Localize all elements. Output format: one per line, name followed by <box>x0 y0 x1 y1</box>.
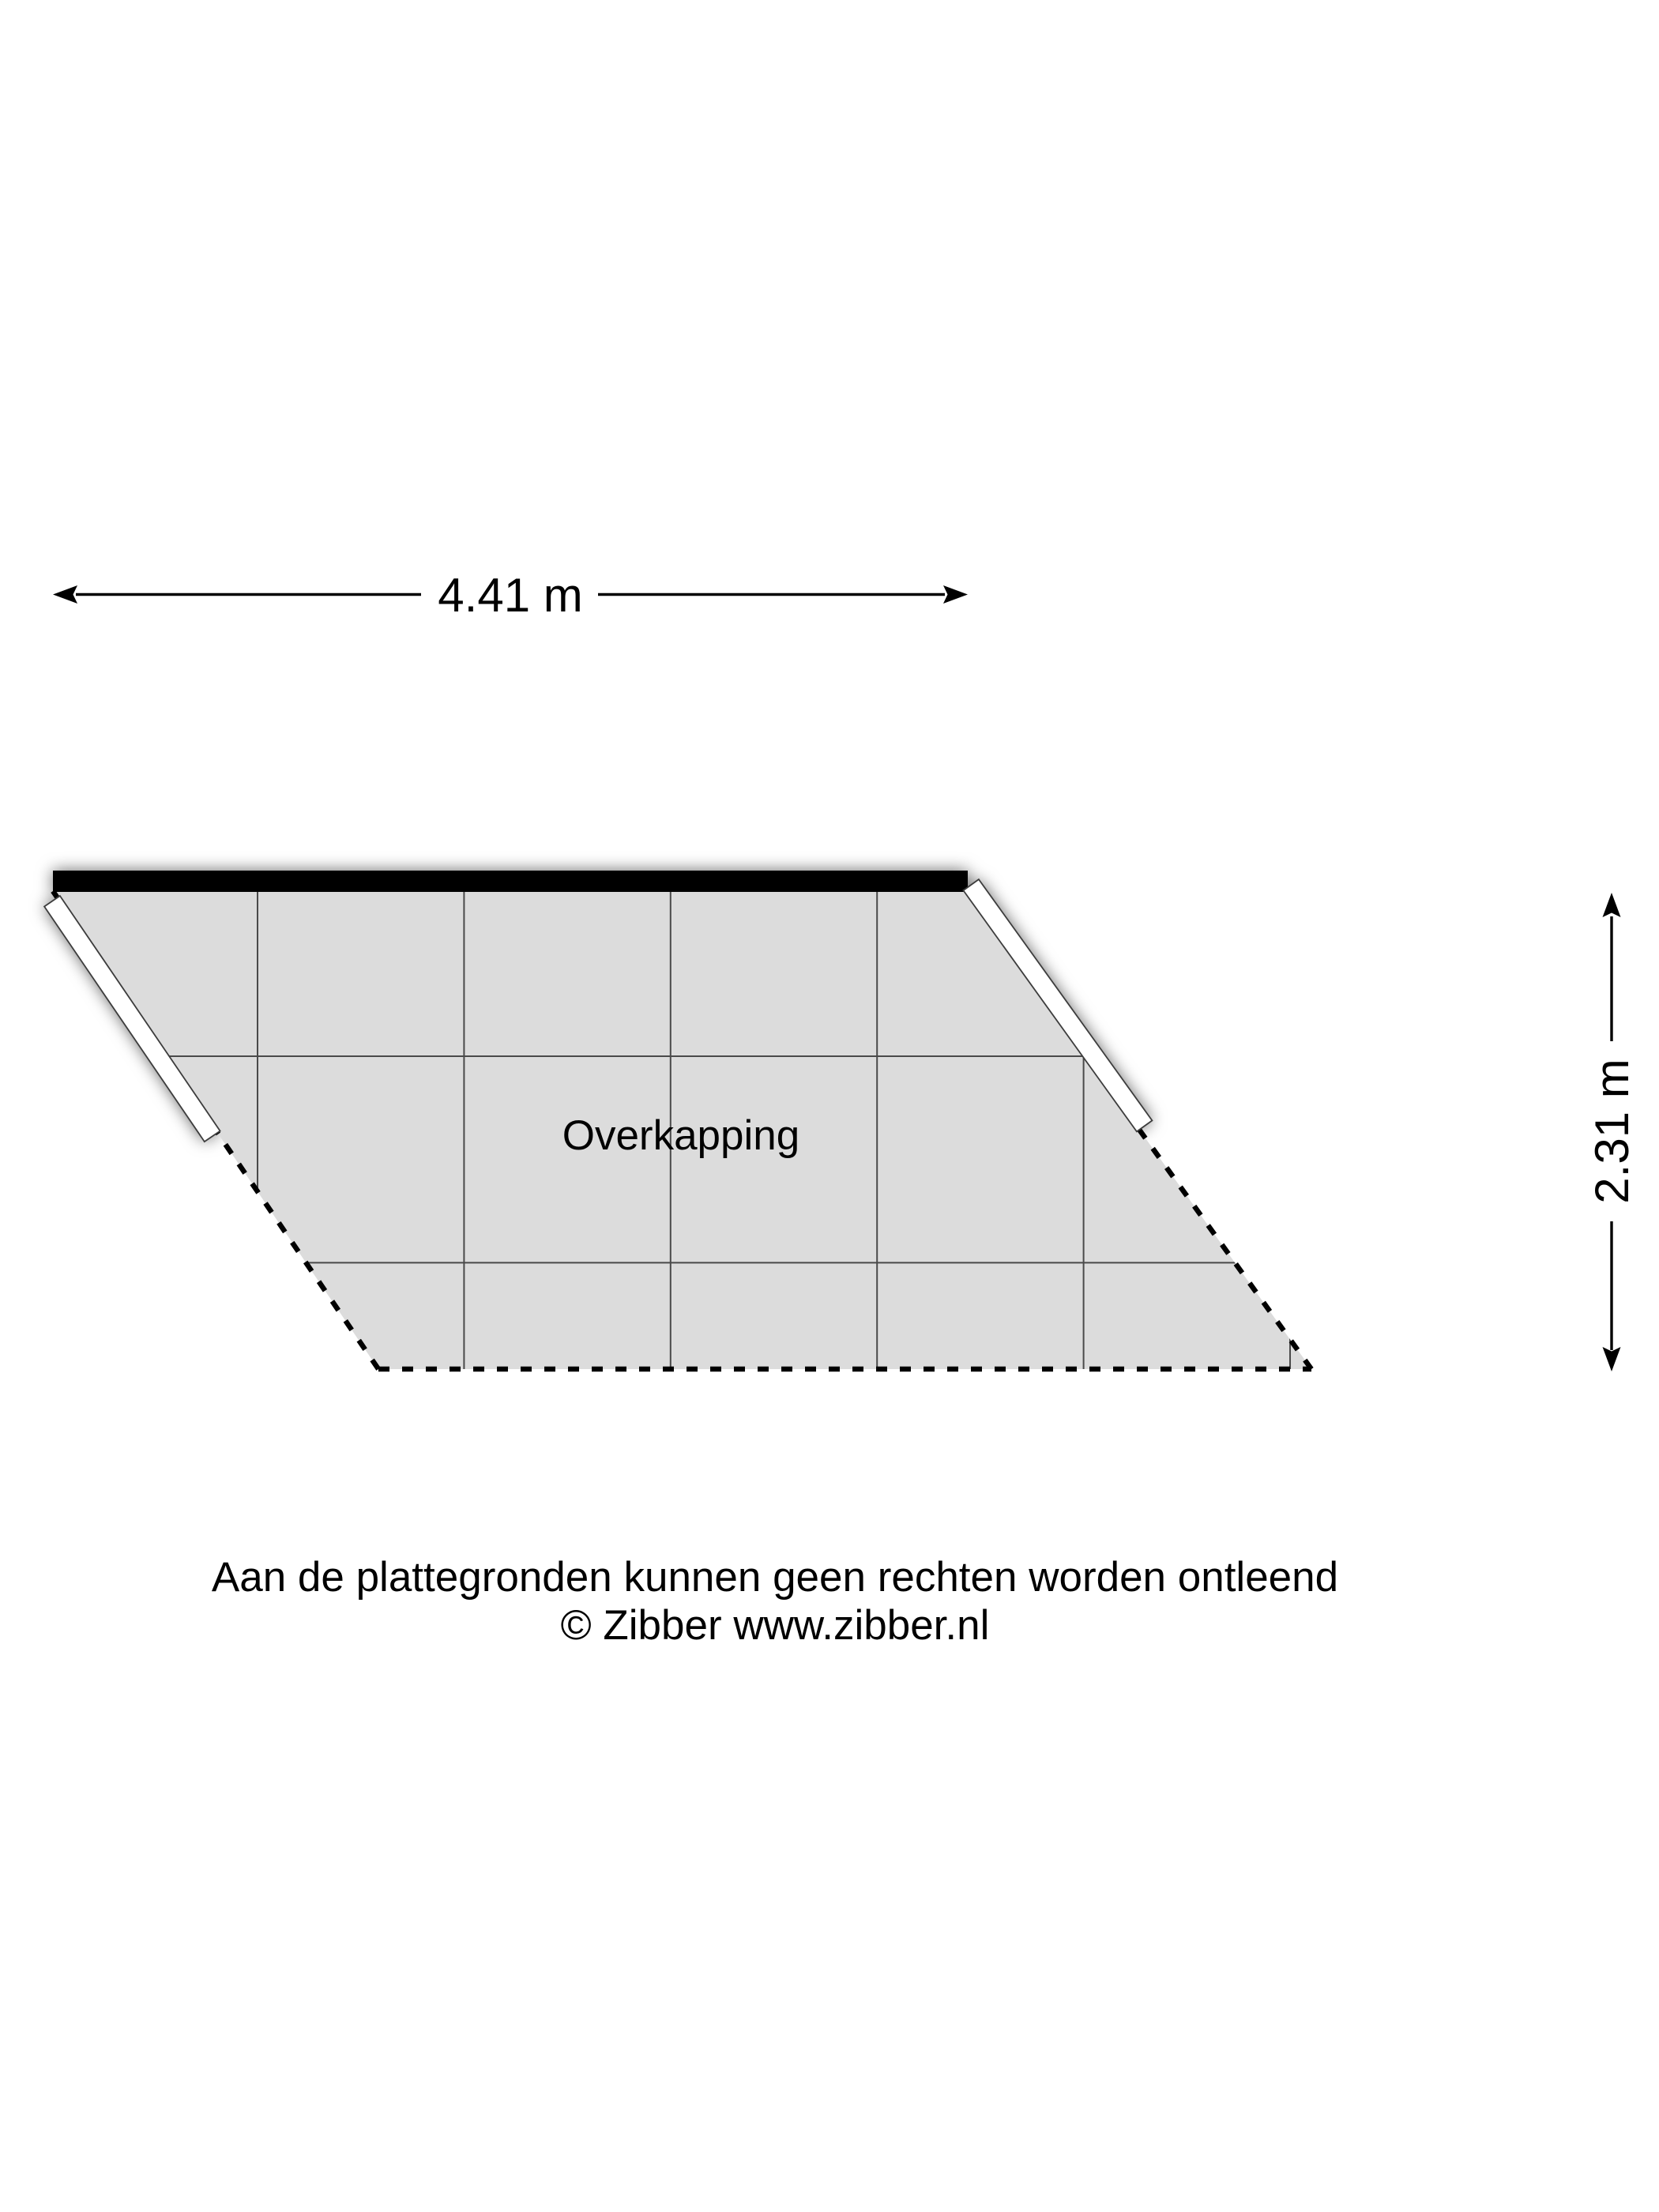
svg-text:© Zibber www.zibber.nl: © Zibber www.zibber.nl <box>561 1602 990 1649</box>
svg-text:4.41 m: 4.41 m <box>438 569 582 622</box>
svg-text:2.31 m: 2.31 m <box>1586 1059 1638 1203</box>
svg-text:Aan de plattegronden kunnen ge: Aan de plattegronden kunnen geen rechten… <box>212 1554 1338 1601</box>
svg-text:Overkapping: Overkapping <box>562 1112 800 1159</box>
